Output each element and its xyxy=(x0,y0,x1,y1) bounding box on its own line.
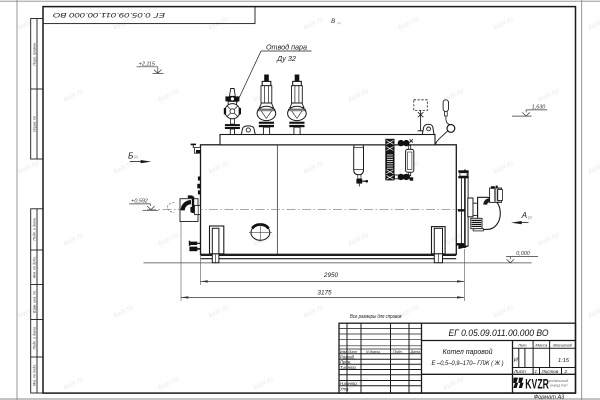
svg-text:3175: 3175 xyxy=(317,290,332,297)
svg-text:И: И xyxy=(514,358,518,364)
svg-text:Пров.: Пров. xyxy=(340,360,351,365)
svg-text:Дата: Дата xyxy=(410,350,420,354)
svg-text:0,000: 0,000 xyxy=(516,251,530,257)
svg-text:Утв.: Утв. xyxy=(340,386,350,391)
svg-text:1:15: 1:15 xyxy=(558,358,570,364)
svg-text:ЕГ 0.05.09.011.00.000 ВО: ЕГ 0.05.09.011.00.000 ВО xyxy=(53,11,165,18)
svg-text:KVZR: KVZR xyxy=(525,375,549,391)
svg-text:Инв. № подл.: Инв. № подл. xyxy=(32,364,36,386)
svg-text:Лист: Лист xyxy=(347,350,357,354)
svg-text:ЗАВОД РЭП: ЗАВОД РЭП xyxy=(550,383,569,387)
svg-text:В: В xyxy=(331,18,335,25)
svg-text:+2,115: +2,115 xyxy=(139,61,156,67)
svg-text:А: А xyxy=(521,211,528,220)
svg-text:Подп. и дата: Подп. и дата xyxy=(32,327,36,350)
svg-text:Т.контр.: Т.контр. xyxy=(340,365,357,370)
svg-text:Подп. и дата: Подп. и дата xyxy=(32,218,36,241)
svg-text:Лист: Лист xyxy=(513,369,526,374)
svg-text:Взам. инв. №: Взам. инв. № xyxy=(32,291,36,313)
svg-text:ЕГ 0.05.09.011.00.000 ВО: ЕГ 0.05.09.011.00.000 ВО xyxy=(449,328,549,338)
svg-text:(2): (2) xyxy=(528,216,532,220)
svg-text:Лит.: Лит. xyxy=(517,342,527,347)
svg-text:(2): (2) xyxy=(134,155,138,159)
svg-text:(2): (2) xyxy=(337,21,341,25)
svg-text:Отвод пара: Отвод пара xyxy=(266,43,307,52)
svg-text:Перв. примен.: Перв. примен. xyxy=(32,42,36,66)
svg-text:1,630: 1,630 xyxy=(532,104,546,110)
svg-text:+0,592: +0,592 xyxy=(131,199,148,205)
svg-text:Масса: Масса xyxy=(535,342,548,347)
svg-text:Формат А3: Формат А3 xyxy=(534,394,565,400)
svg-text:2: 2 xyxy=(564,369,568,374)
svg-text:Масштаб: Масштаб xyxy=(553,342,572,347)
svg-text:Котел паровой: Котел паровой xyxy=(443,348,493,356)
svg-text:Е –0,5–0,9–170– ГЛЖ ( Ж ): Е –0,5–0,9–170– ГЛЖ ( Ж ) xyxy=(432,360,504,367)
svg-text:2950: 2950 xyxy=(323,272,339,279)
svg-text:Листов: Листов xyxy=(541,369,559,374)
svg-text:Инв. № дубл.: Инв. № дубл. xyxy=(32,256,36,278)
svg-text:Н.контр.: Н.контр. xyxy=(340,381,358,386)
svg-text:Справ. №: Справ. № xyxy=(32,116,36,132)
svg-text:1: 1 xyxy=(535,369,538,374)
svg-text:Ду 32: Ду 32 xyxy=(276,54,296,63)
svg-text:N докум.: N докум. xyxy=(366,350,381,354)
svg-text:Изм.: Изм. xyxy=(340,350,348,354)
svg-text:Все размеры для справок: Все размеры для справок xyxy=(350,314,402,320)
svg-text:Подп.: Подп. xyxy=(393,350,403,354)
